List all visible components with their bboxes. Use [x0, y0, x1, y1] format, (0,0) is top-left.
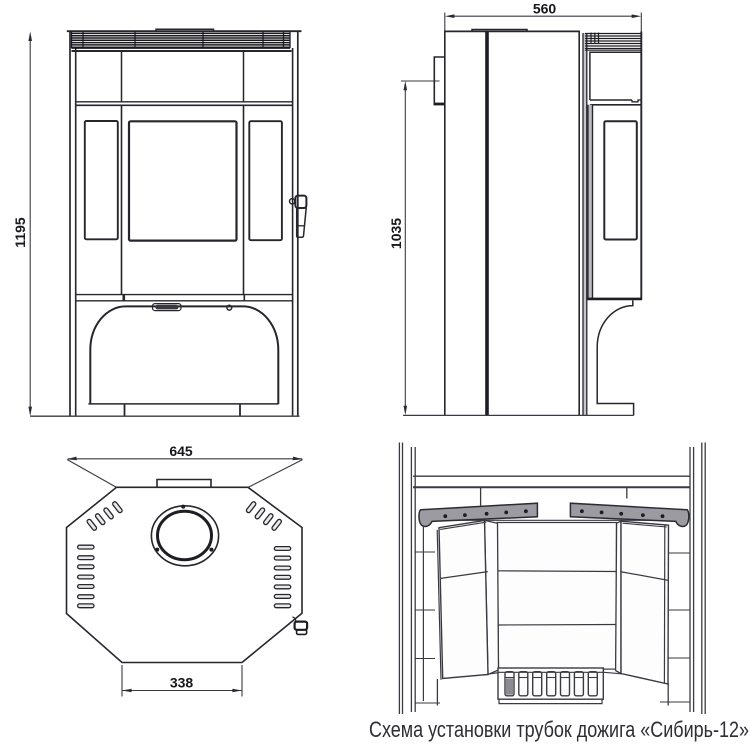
svg-text:Схема установки трубок дожига: Схема установки трубок дожига «Сибирь-12… [369, 717, 749, 742]
svg-text:560: 560 [533, 1, 557, 17]
svg-text:1195: 1195 [12, 217, 28, 248]
svg-text:338: 338 [170, 675, 194, 691]
svg-text:1035: 1035 [388, 218, 404, 249]
svg-text:645: 645 [169, 443, 193, 459]
